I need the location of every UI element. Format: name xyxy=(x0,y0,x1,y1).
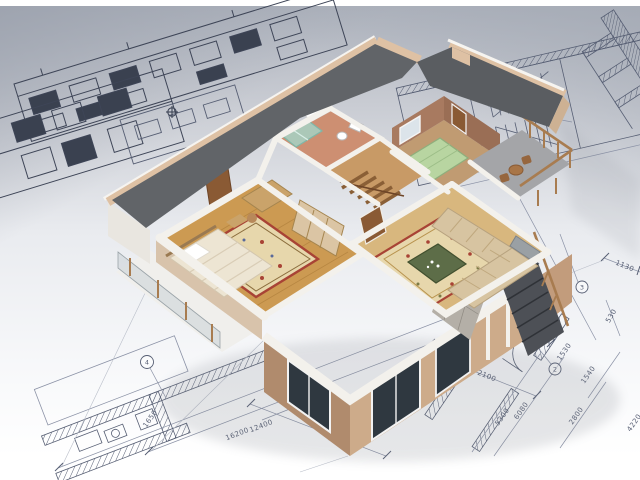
architectural-render: 4 2 3 16200 12400 1650 2300 6600 2100 53… xyxy=(0,0,640,480)
grid-bubble-label: 4 xyxy=(145,359,149,367)
balcony-table xyxy=(509,165,523,175)
toilet xyxy=(337,132,347,140)
chair xyxy=(247,213,257,223)
render-canvas: 4 2 3 16200 12400 1650 2300 6600 2100 53… xyxy=(0,0,640,480)
grid-bubble-label: 3 xyxy=(580,284,584,292)
